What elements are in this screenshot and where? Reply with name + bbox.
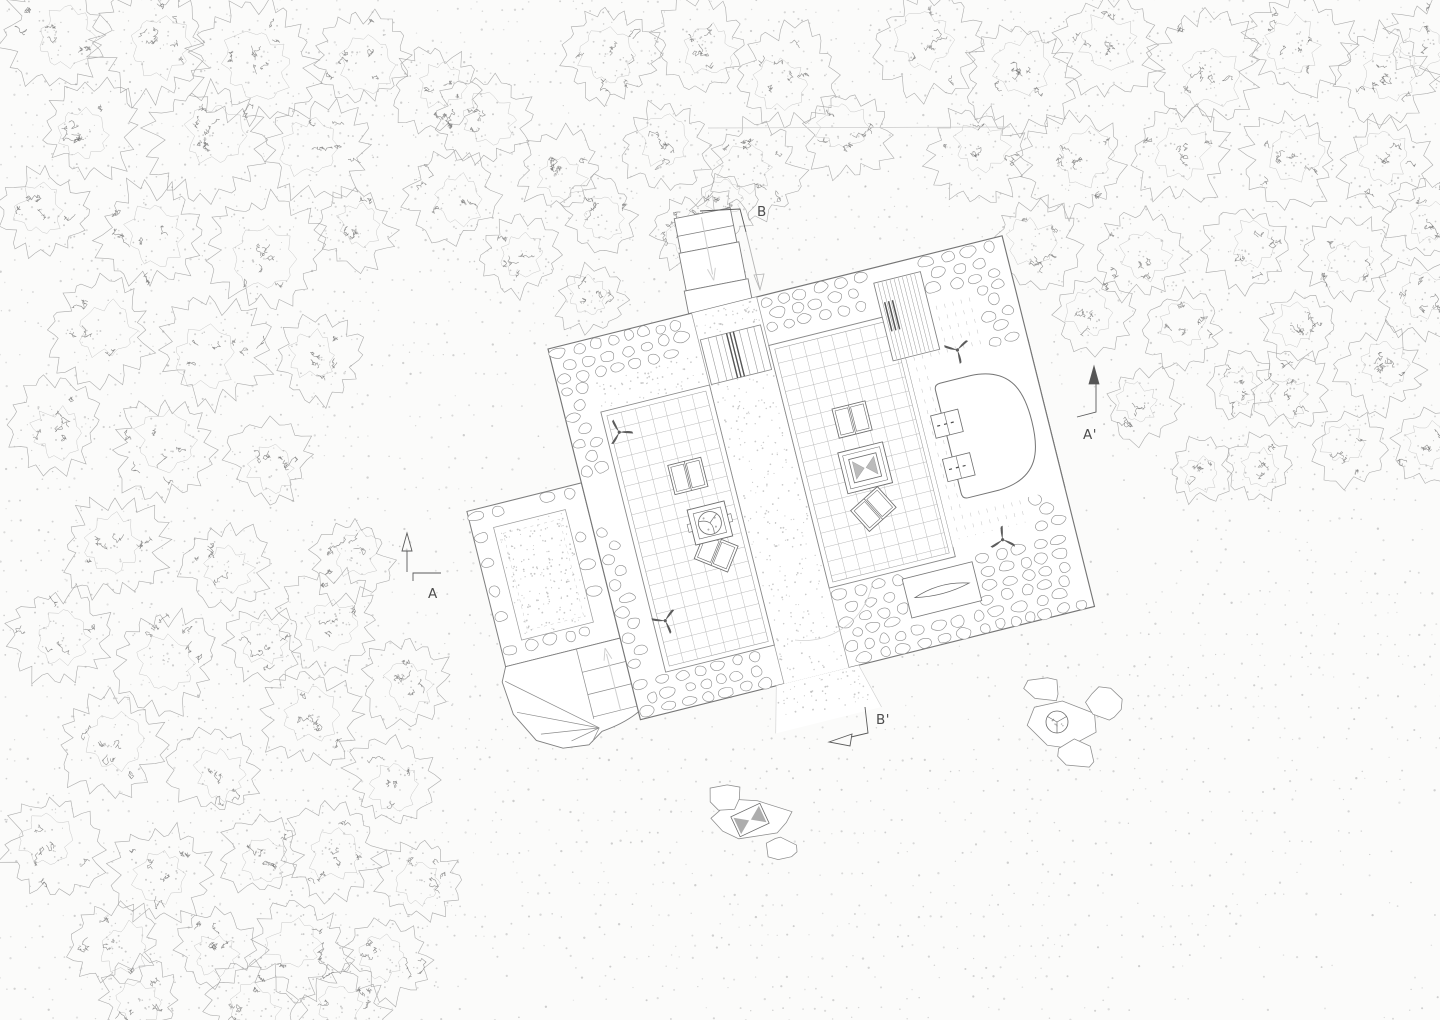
boulder-seating [710, 678, 1122, 860]
drawing-sheet: B A' A B' [0, 0, 1440, 1020]
section-label-a-prime: A' [1083, 427, 1097, 443]
section-label-b-prime: B' [876, 712, 890, 728]
site-plan-canvas: B A' A B' [0, 0, 1440, 1020]
section-label-b: B [757, 204, 767, 220]
section-label-a: A [428, 586, 438, 602]
building-plan [403, 143, 1105, 795]
